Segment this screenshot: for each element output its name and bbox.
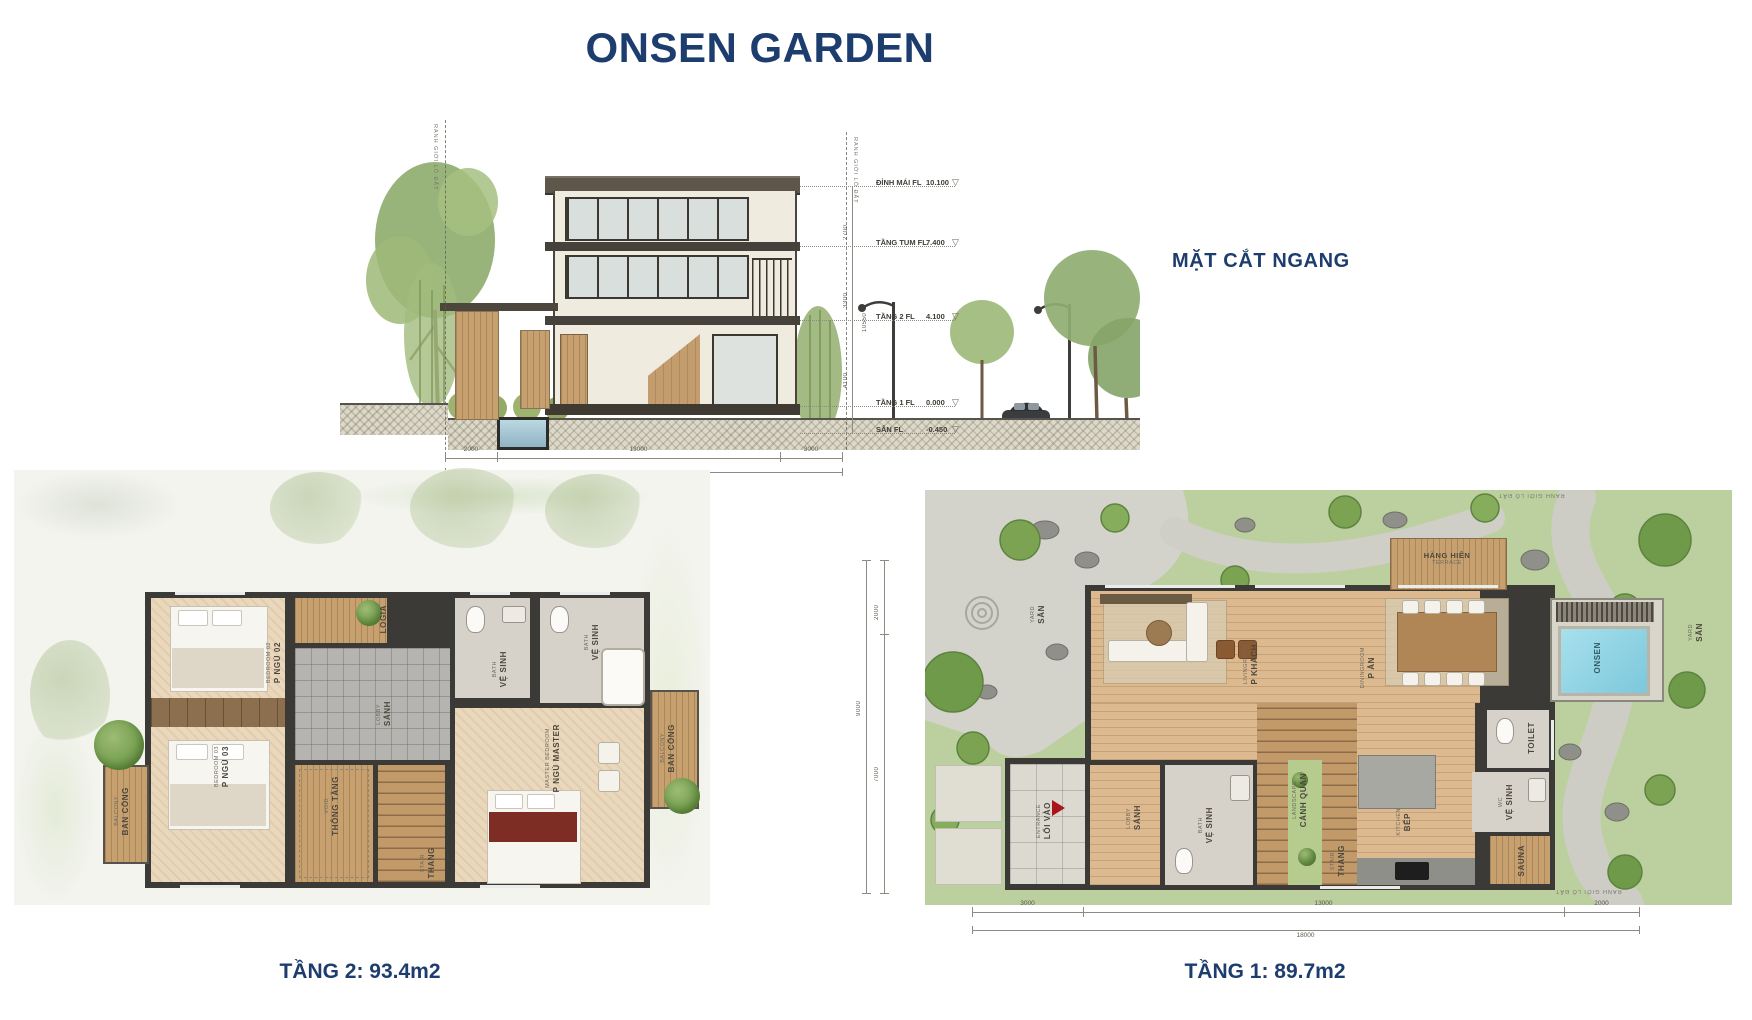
bottom-dim-line (972, 912, 1639, 913)
street-tree-small (950, 300, 1014, 422)
balcony-tree (94, 720, 144, 770)
room-label-void: THÔNG TẦNGVOID (324, 778, 340, 834)
sofa (1186, 602, 1208, 662)
side-dim: 2000 (874, 576, 880, 620)
room-label-living: P KHÁCHLIVINGROOM (1243, 635, 1259, 693)
bottom-dim: 13000 (1083, 900, 1564, 907)
elevation-marker-icon: ▽ (952, 312, 959, 321)
onsen-pool (1558, 626, 1650, 696)
room-label-balcony-right: BAN CÔNGBALCONY (660, 724, 676, 772)
entry-paving-pad (935, 828, 1002, 885)
side-dim: 7000 (874, 738, 880, 782)
dining-table (1397, 612, 1497, 672)
height-dim-total: 10550 (862, 286, 868, 332)
room-label-lobby: SẢNHLOBBY (1126, 795, 1142, 841)
room-label-sauna: SAUNA (1516, 840, 1526, 882)
toilet-fixture (466, 606, 485, 633)
room-label-bedroom02: P NGỦ 02BEDROOM 02 (266, 636, 282, 690)
toilet-fixture (1496, 718, 1514, 744)
room-label-bath2: VỆ SINHBATH (584, 620, 600, 664)
soft-tree (270, 472, 366, 544)
section-dim: 2000 (445, 446, 497, 453)
room-label-terrace: HÀNG HIÊNTERRACE (1402, 551, 1492, 567)
balcony-tree (664, 778, 700, 814)
dim-tick (880, 893, 889, 894)
dim-tick (842, 452, 843, 462)
dining-chair (1446, 672, 1463, 686)
level-value: -0.450 (926, 425, 947, 434)
window (1255, 585, 1345, 588)
onsen-screen (1556, 602, 1654, 622)
dim-tick (1639, 926, 1640, 934)
red-blanket (489, 812, 577, 842)
section-l1-door (560, 334, 588, 409)
page: ONSEN GARDEN MẶT CẮT NGANG (0, 0, 1752, 1020)
sofa (1108, 640, 1188, 662)
room-label-entrance: LỐI VÀOENTRANCE (1036, 793, 1052, 849)
section-l2-glazing (565, 255, 749, 299)
height-dim: 4100 (843, 346, 849, 388)
room-label-onsen: ONSEN (1592, 634, 1602, 682)
sink-fixture (1230, 775, 1250, 801)
floor1-caption: TẦNG 1: 89.7m2 (1150, 960, 1380, 984)
dining-chair (1402, 600, 1419, 614)
window (470, 592, 510, 595)
room-label-kitchen: BẾPKITCHEN (1396, 796, 1412, 848)
window (1320, 886, 1400, 889)
floor1-lobby (1090, 765, 1160, 885)
pillow (178, 610, 208, 626)
toilet-fixture (550, 606, 569, 633)
floor1-boundary-label-bottom: RANH GIỚI LÔ ĐẤT (1555, 888, 1622, 894)
pillow (212, 610, 242, 626)
section-dim: 13000 (497, 446, 780, 453)
bottom-dim-total-line (972, 930, 1639, 931)
coffee-table (1146, 620, 1172, 646)
section-tum-glazing (565, 197, 749, 241)
page-title: ONSEN GARDEN (580, 24, 940, 72)
room-label-dining: P ĂNDININGROOM (1360, 640, 1376, 696)
level-value: 10.100 (926, 178, 949, 187)
section-floor-slab (545, 404, 800, 415)
section-slab-l2 (545, 316, 800, 325)
section-planter-ground (340, 403, 448, 435)
room-label-toilet: TOILET (1526, 716, 1536, 760)
soft-tree (545, 474, 645, 548)
dim-tick (842, 468, 843, 476)
dining-chair (1468, 672, 1485, 686)
toilet-fixture (1175, 848, 1193, 874)
entrance-arrow-icon (1052, 800, 1065, 816)
window (175, 592, 245, 595)
window (1551, 720, 1554, 760)
height-dim: 3300 (843, 266, 849, 308)
room-label-lobby: SẢNHLOBBY (376, 694, 392, 734)
section-entry-door (520, 330, 550, 409)
section-l1-window (712, 334, 778, 410)
floor1-boundary-label-top: RANH GIỚI LÔ ĐẤT (1498, 492, 1565, 498)
dim-tick (1564, 907, 1565, 917)
room-label-bedroom03: P NGỦ 03BEDROOM 03 (214, 740, 230, 794)
room-label-balcony-left: BAN CÔNGBALCONY (114, 786, 130, 836)
elevation-marker-icon: ▽ (952, 178, 959, 187)
section-dim-line (445, 458, 842, 459)
strip-plant (1298, 848, 1316, 866)
sink-fixture (1528, 778, 1546, 802)
elevation-marker-icon: ▽ (952, 398, 959, 407)
room-label-wc: VỆ SINHWC (1498, 778, 1514, 826)
section-l2-railing (752, 258, 792, 318)
bottom-dim: 3000 (972, 900, 1083, 907)
blanket (172, 648, 264, 688)
dim-tick (880, 634, 889, 635)
room-label-bath: VỆ SINHBATH (1198, 798, 1214, 852)
section-annex-wall (455, 311, 499, 420)
sink-fixture (502, 606, 526, 623)
floor2-lobby (295, 648, 450, 760)
level-name: TẦNG 2 FL (876, 312, 915, 321)
window (180, 885, 240, 888)
height-dim-line (852, 186, 853, 433)
level-value: 4.100 (926, 312, 945, 321)
dim-tick (780, 452, 781, 462)
stove (1395, 862, 1429, 880)
room-label-landscape: CẢNH QUANLANDSCAPE (1292, 770, 1308, 830)
dim-tick (445, 452, 446, 462)
side-dim-line (884, 560, 885, 893)
floor1-corridor-deck (1091, 703, 1257, 760)
dim-tick (972, 907, 973, 917)
window (480, 885, 540, 888)
height-dim: 2700 (843, 198, 849, 240)
floor2-caption: TẦNG 2: 93.4m2 (250, 960, 470, 984)
section-slab-tum (545, 242, 800, 251)
entry-paving-pad (935, 765, 1002, 822)
street-trees-right (1044, 250, 1140, 422)
floor2-wardrobe (151, 698, 285, 727)
pillow (176, 744, 208, 760)
level-value: 0.000 (926, 398, 945, 407)
level-name: SÂN FL (876, 425, 903, 434)
window (1105, 585, 1235, 588)
dining-chair (1402, 672, 1419, 686)
section-canopy (440, 303, 558, 311)
section-boundary-label-left: RANH GIỚI LÔ ĐẤT (432, 124, 438, 191)
dining-chair (1424, 600, 1441, 614)
dining-chair (1424, 672, 1441, 686)
room-label-bath1: VỆ SINHBATH (492, 645, 508, 693)
soft-tree (410, 468, 520, 548)
room-label-yard-left: SÂNYARD (1030, 596, 1046, 632)
window (1398, 585, 1498, 588)
armchair (598, 770, 620, 792)
bottom-dim-total: 18000 (972, 932, 1639, 939)
side-dim-total-line (866, 560, 867, 893)
dining-chair (1468, 600, 1485, 614)
section-boundary-line-left (445, 120, 446, 460)
dim-tick (862, 560, 871, 561)
window (560, 592, 610, 595)
room-label-master: P NGỦ MASTERMASTER BEDROOM (545, 726, 561, 790)
section-dim: 3000 (780, 446, 842, 453)
armchair (1216, 640, 1235, 659)
level-name: TẦNG 1 FL (876, 398, 915, 407)
section-bamboo-left (404, 263, 460, 415)
room-label-logia: LOGIA (378, 600, 388, 638)
level-name: ĐỈNH MÁI FL (876, 178, 921, 187)
dim-tick (880, 560, 889, 561)
pillow (495, 794, 523, 809)
bathtub (601, 648, 645, 706)
bottom-dim: 2000 (1564, 900, 1639, 907)
dim-tick (497, 452, 498, 462)
room-label-stair: THANGSTAIR (1330, 838, 1346, 884)
tv-console (1100, 594, 1192, 604)
dim-tick (1083, 907, 1084, 917)
side-dim-total: 9000 (856, 668, 862, 716)
dim-tick (1639, 907, 1640, 917)
section-view-label: MẶT CẮT NGANG (1172, 250, 1350, 273)
pillow (527, 794, 555, 809)
armchair (598, 742, 620, 764)
elevation-marker-icon: ▽ (952, 238, 959, 247)
dining-chair (1446, 600, 1463, 614)
level-value: 7.400 (926, 238, 945, 247)
level-name: TẦNG TUM FL (876, 238, 927, 247)
room-label-yard-right: SÂNYARD (1688, 612, 1704, 652)
elevation-marker-icon: ▽ (952, 425, 959, 434)
room-label-stair: THANGSTAIR (420, 842, 436, 884)
dim-tick (862, 893, 871, 894)
